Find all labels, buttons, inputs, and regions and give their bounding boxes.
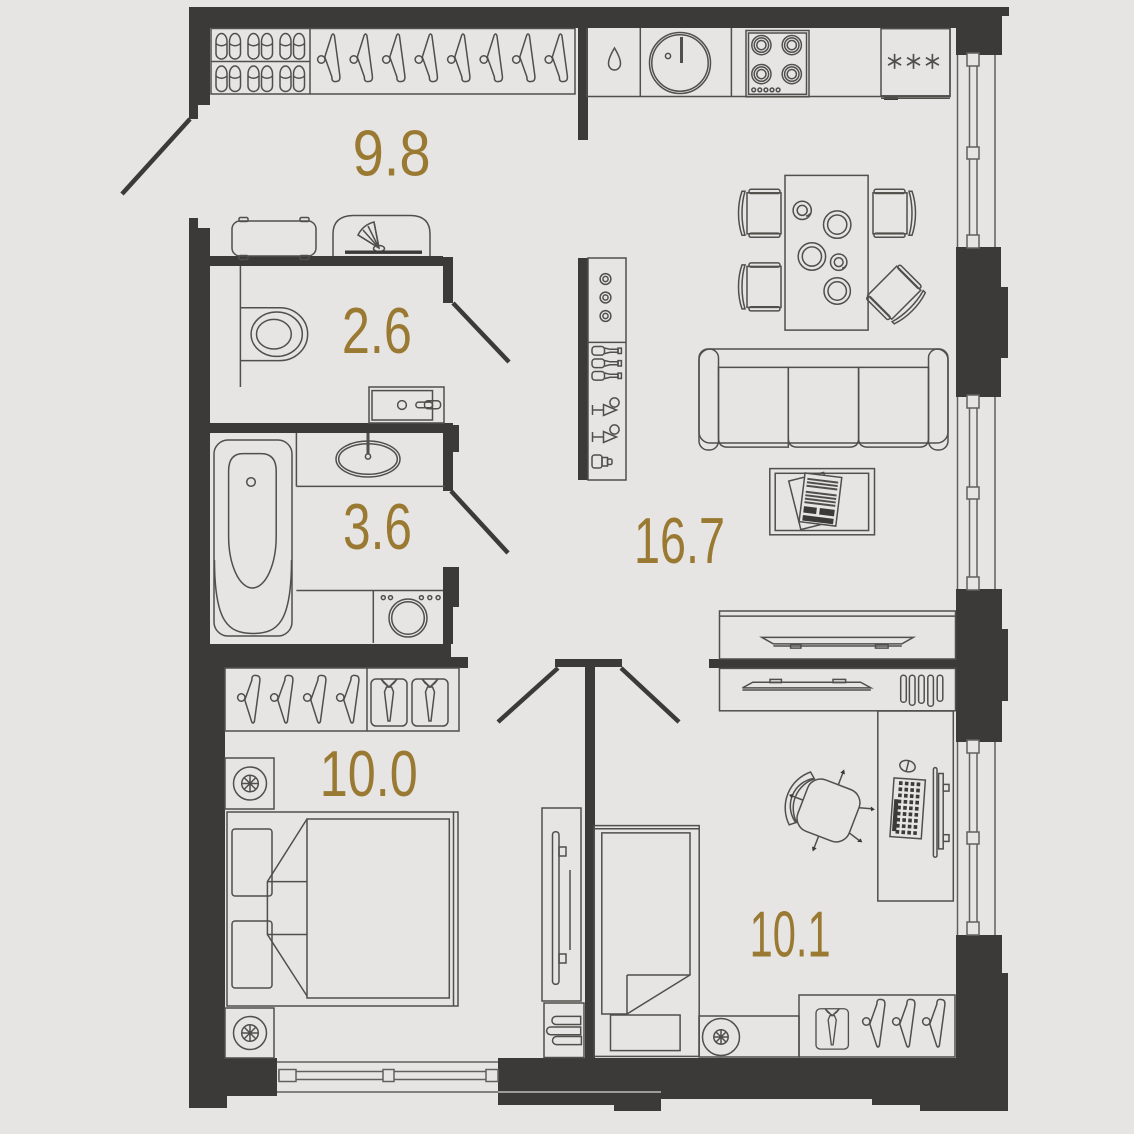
svg-text:2.6: 2.6 <box>342 294 412 367</box>
svg-text:16.7: 16.7 <box>634 504 725 577</box>
svg-text:9.8: 9.8 <box>353 117 431 190</box>
svg-text:10.0: 10.0 <box>320 737 418 810</box>
svg-text:10.1: 10.1 <box>750 898 831 971</box>
svg-text:3.6: 3.6 <box>343 490 412 563</box>
